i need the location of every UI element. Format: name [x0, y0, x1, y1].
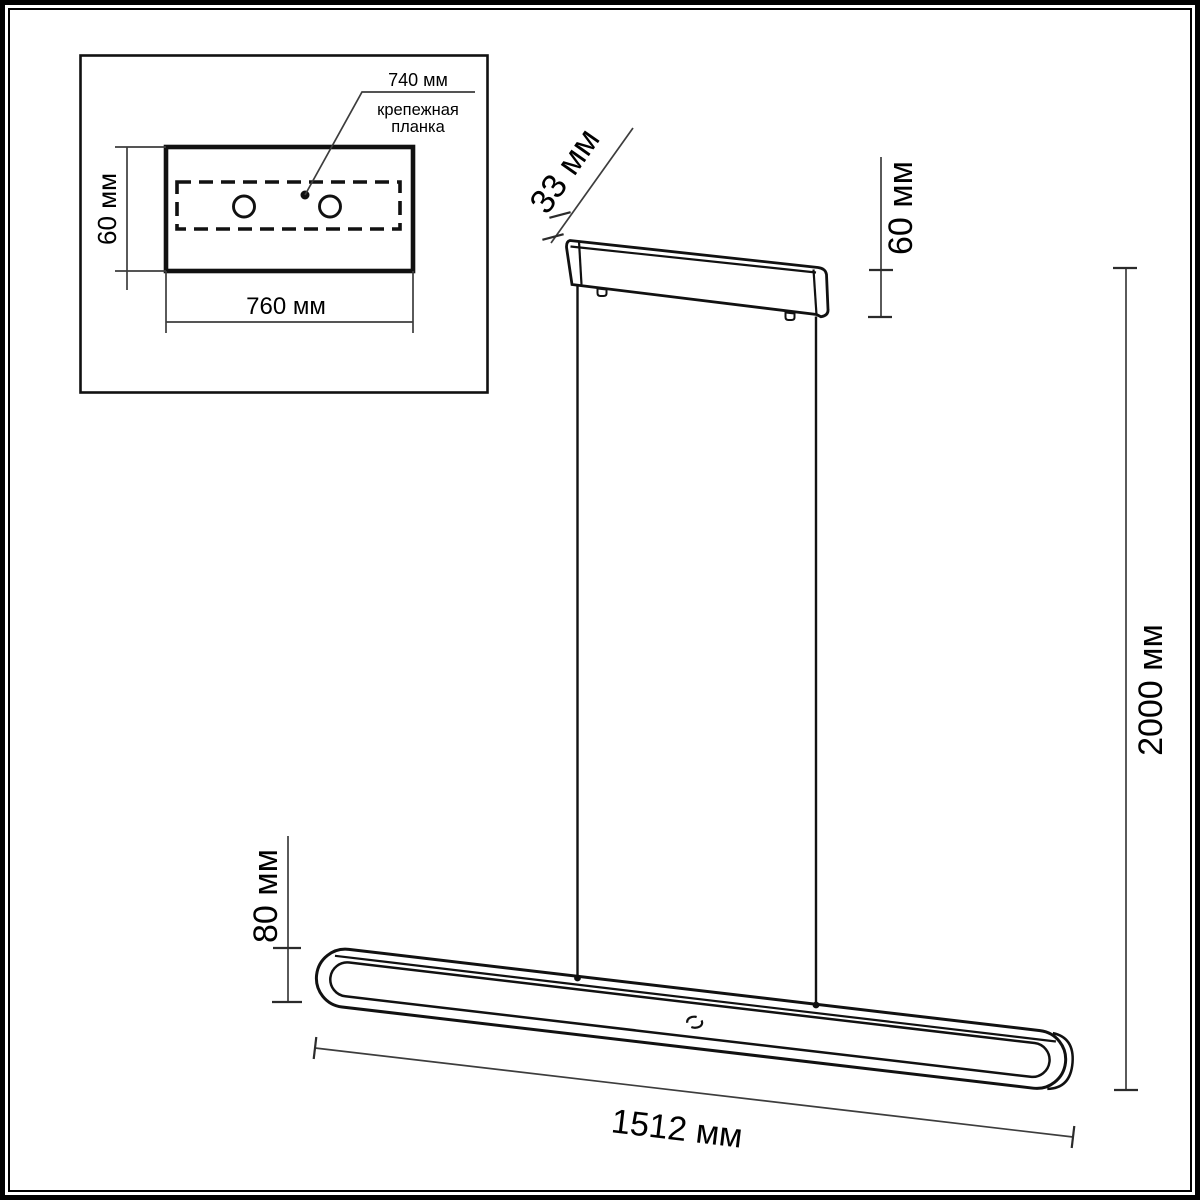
bar-length-label: 1512 мм [609, 1102, 744, 1155]
inset-height-label: 60 мм [92, 173, 122, 245]
bar-height-label: 80 мм [247, 849, 285, 943]
plate-name-line2: планка [391, 118, 445, 136]
inset-width-label: 760 мм [246, 293, 326, 320]
plate-name-line1: крепежная [377, 101, 459, 119]
suspension-length-label: 2000 мм [1132, 624, 1170, 756]
suspension-length-dimension: 2000 мм [1113, 268, 1170, 1090]
dimension-diagram: 740 мм крепежная планка 60 мм 760 мм [0, 0, 1200, 1200]
bar-height-dimension: 80 мм [247, 836, 302, 1003]
canopy-rect [166, 147, 413, 271]
wire-attach-left [574, 975, 581, 982]
wire-gland-right [786, 313, 795, 321]
canopy-body [567, 241, 829, 317]
canopy-depth-label: 33 мм [522, 122, 607, 221]
canopy-depth-dimension: 33 мм [522, 122, 633, 243]
plate-width-label: 740 мм [388, 70, 448, 90]
wire-gland-left [598, 289, 607, 297]
canopy-height-label: 60 мм [882, 161, 920, 255]
light-bar-outer [313, 946, 1069, 1092]
canopy-height-dimension: 60 мм [868, 157, 920, 318]
technical-drawing-page: 740 мм крепежная планка 60 мм 760 мм [0, 0, 1200, 1200]
canopy-top-view-inset: 740 мм крепежная планка 60 мм 760 мм [81, 56, 488, 393]
wire-attach-right [813, 1002, 820, 1009]
canopy-3d [567, 241, 829, 321]
light-bar [313, 946, 1076, 1092]
